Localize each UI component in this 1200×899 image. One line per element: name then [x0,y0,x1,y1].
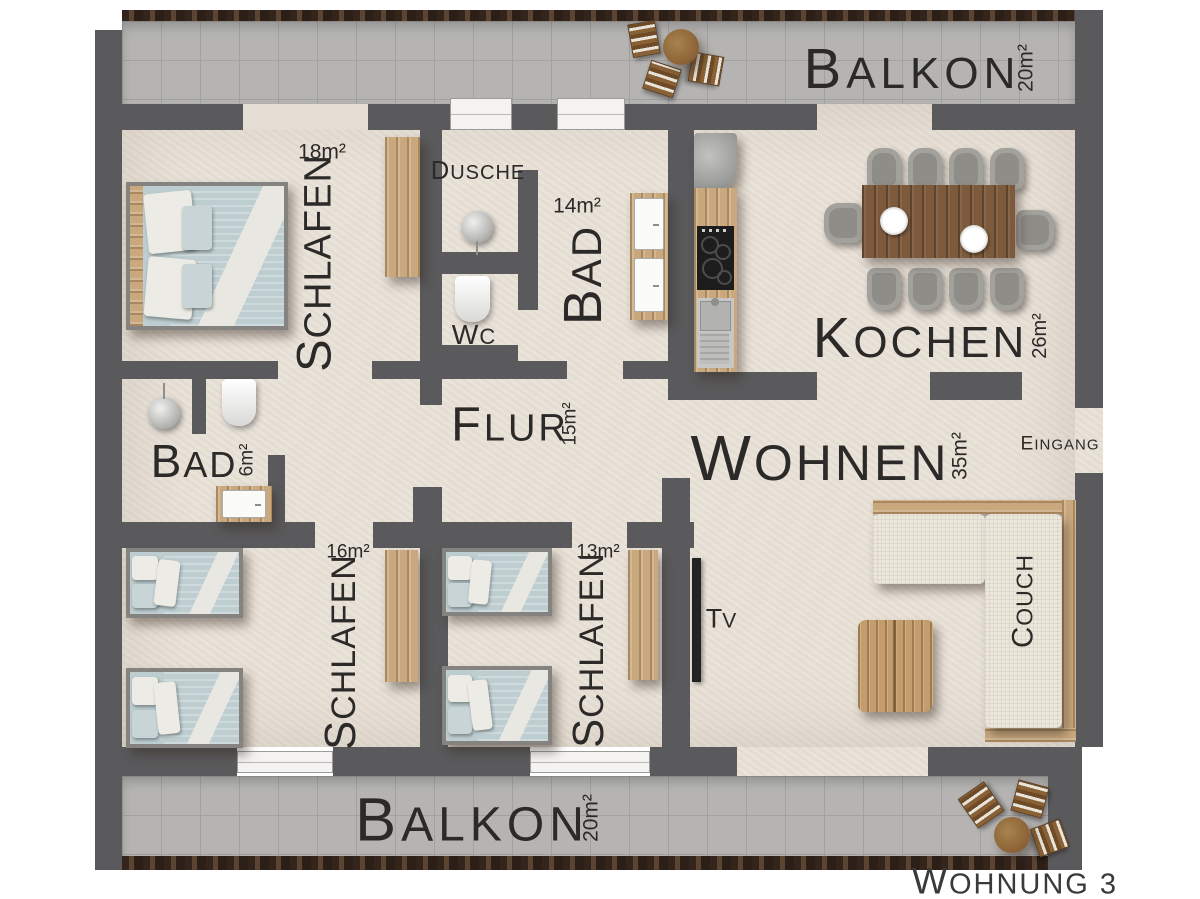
balcony-top-railing [122,10,1075,21]
wall-wc-divider [437,252,525,274]
wall-bad6-stub [192,379,206,434]
label-couch: COUCH [1008,554,1037,648]
balcony-door-floor-bottom [737,747,928,776]
label-balkon-top: BALKON [804,41,1021,97]
dining-chair [990,148,1024,190]
window-schlafen13 [530,751,650,773]
coffee-table [858,620,933,712]
dining-chair [867,148,901,190]
wall-flur-bottom-2 [373,522,572,548]
wall-flur-stub [413,487,442,522]
label-eingang: EINGANG [1021,434,1100,453]
balcony-table [994,817,1030,853]
dining-chair [990,268,1024,310]
wall-tv [662,478,690,747]
double-bed [126,182,288,330]
single-bed [442,666,552,745]
label-flur-area: 15m² [561,402,580,445]
washbasin [634,258,664,312]
balcony-table [663,29,699,65]
label-balkon-bottom-area: 20m² [581,794,602,842]
balcony-bottom-railing [122,856,1048,870]
label-tv: TV [706,606,736,633]
window-bad14 [557,98,625,130]
wall-kitchen-left [668,130,694,372]
couch-frame-bottom [985,728,1076,742]
wall-right-upper [1075,10,1103,408]
plate [960,225,988,253]
dining-chair [949,268,983,310]
wall-bottom-4 [928,747,1048,776]
wall-dusche-partition [518,170,538,310]
couch-frame-top [873,500,1068,514]
floorplan-page: BALKON 20m² 18m² SCHLAFEN DUSCHE WC 14m²… [0,0,1200,899]
shower-hose [163,383,165,399]
apartment-title: WOHNUNG 3 [912,862,1118,899]
label-schlafen16: SCHLAFEN [320,554,364,750]
fridge [694,133,737,190]
wall-bottom-1 [95,747,237,776]
window-dusche [450,98,512,130]
dining-chair [949,148,983,190]
wall-bottom-3 [650,747,737,776]
shower-head [148,397,180,429]
wardrobe [628,550,658,680]
wall-left [95,30,122,870]
window-schlafen16 [237,751,333,773]
bed-headboard [130,186,143,326]
burner [717,270,732,285]
shower-head [461,211,493,243]
dining-chair [1016,210,1054,250]
label-schlafen18: SCHLAFEN [291,154,340,372]
label-wohnen-area: 35m² [950,432,971,480]
dining-chair [867,268,901,310]
single-bed [126,548,243,618]
plate [880,207,908,235]
washbasin [222,490,266,518]
wall-top-4 [625,104,817,130]
toilet [222,379,256,426]
label-dusche: DUSCHE [431,159,526,185]
balcony-chair [627,20,660,58]
wardrobe [385,550,418,682]
label-kochen-area: 26m² [1030,313,1050,359]
wall-right-lower [1075,473,1103,747]
faucet [711,298,719,306]
bed-pillow [182,206,212,250]
label-schlafen13: SCHLAFEN [568,552,612,748]
label-bad6-area: 6m² [238,444,257,477]
wall-mid-1 [122,361,278,379]
couch-seat-horizontal [873,514,985,584]
window-schlafen18 [243,104,368,130]
dining-table [862,185,1015,258]
single-bed [442,548,552,616]
label-balkon-bottom: BALKON [355,789,589,850]
label-bad14-area: 14m² [553,196,601,217]
label-wc: WC [452,321,496,349]
dining-chair [908,268,942,310]
label-kochen: KOCHEN [813,310,1027,366]
wall-flur-bottom-1 [122,522,315,548]
label-flur: FLUR [451,401,569,450]
wall-top-3 [512,104,557,130]
wardrobe [385,137,420,277]
wall-kochen-wohnen-2 [930,372,1022,400]
toilet [455,276,490,322]
dining-chair [908,148,942,190]
wall-top-1 [122,104,243,130]
washbasin [634,198,664,250]
tv [692,558,701,682]
label-wohnen: WOHNEN [691,426,950,490]
shower-hose [476,241,478,255]
single-bed [126,668,243,748]
wall-top-5 [932,104,1075,130]
cooktop [697,226,734,290]
burner [715,244,731,260]
wall-kochen-wohnen-1 [668,372,817,400]
bed-pillow [182,264,212,308]
label-bad6: BAD [151,438,238,484]
couch-frame-right [1062,500,1076,742]
label-bad14: BAD [557,225,611,325]
label-balkon-top-area: 20m² [1016,44,1037,92]
kitchen-sink [697,298,734,368]
wall-top-2 [368,104,450,130]
dining-chair [824,203,862,243]
